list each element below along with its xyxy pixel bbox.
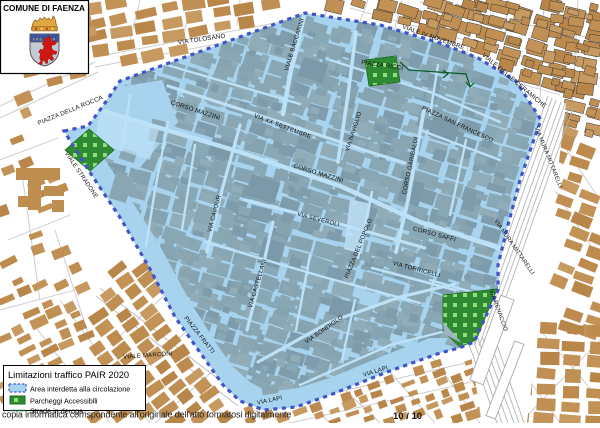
svg-text:Parcheggi Accessiblli: Parcheggi Accessiblli <box>30 397 98 406</box>
svg-text:copia informatica corrisponden: copia informatica corrispondente all'ori… <box>2 410 291 420</box>
svg-text:10 / 10: 10 / 10 <box>393 411 422 422</box>
svg-text:COMUNE DI FAENZA: COMUNE DI FAENZA <box>3 4 85 13</box>
svg-text:Area interdetta alla circolazi: Area interdetta alla circolazione <box>30 385 130 394</box>
svg-text:Limitazioni traffico PAIR 2020: Limitazioni traffico PAIR 2020 <box>8 370 129 380</box>
